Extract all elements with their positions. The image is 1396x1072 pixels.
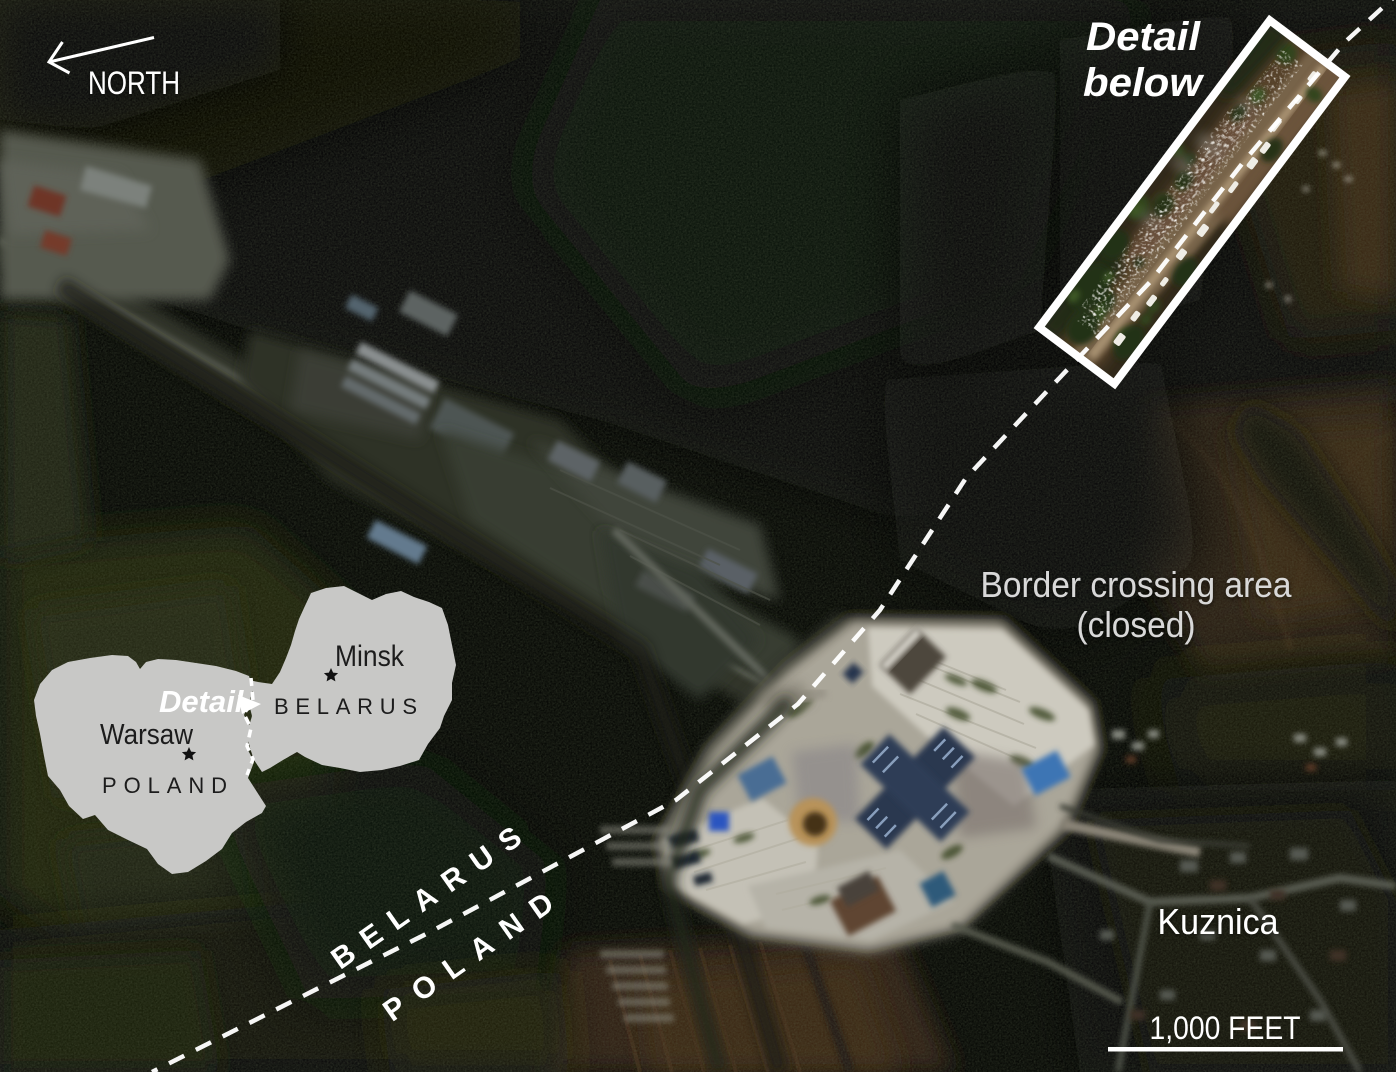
svg-text:Detail: Detail: [1086, 15, 1201, 59]
svg-text:Kuznica: Kuznica: [1158, 901, 1280, 942]
svg-text:1,000 FEET: 1,000 FEET: [1150, 1010, 1301, 1046]
svg-text:Border crossing area: Border crossing area: [981, 564, 1293, 605]
svg-text:Warsaw: Warsaw: [100, 719, 194, 751]
svg-text:Minsk: Minsk: [335, 640, 405, 673]
svg-text:Detail: Detail: [159, 684, 245, 719]
svg-text:NORTH: NORTH: [88, 65, 180, 101]
svg-text:below: below: [1083, 61, 1205, 105]
svg-text:BELARUS: BELARUS: [274, 694, 417, 719]
svg-text:(closed): (closed): [1077, 604, 1196, 645]
